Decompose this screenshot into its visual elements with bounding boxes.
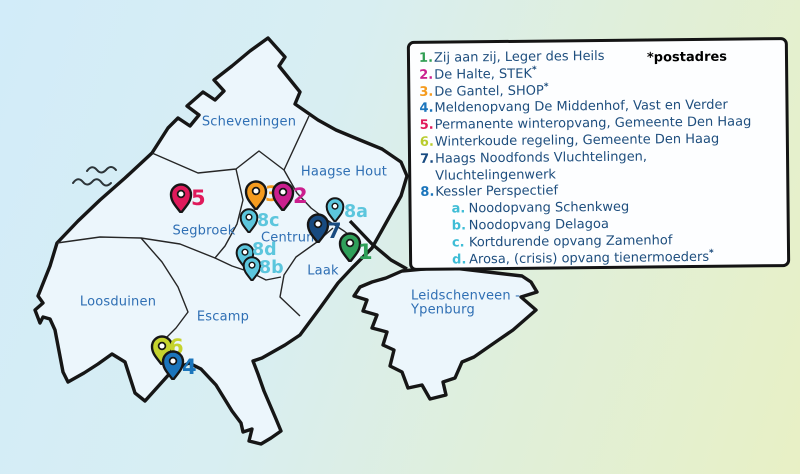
legend-item-number: 3. [419,84,434,101]
pin-label-4: 4 [182,355,197,379]
den-haag-opvang-infographic: ScheveningenHaagse HoutSegbroekCentrumLa… [0,0,800,474]
legend-subitem-label: Arosa, (crisis) opvang tienermoeders* [469,249,714,268]
district-label-ypenburg: Ypenburg [411,303,475,318]
legend-subitem-letter: a. [451,202,468,219]
district-label-laak: Laak [307,264,339,279]
postadres-note: *postadres [647,50,727,66]
pin-label-5: 5 [191,186,206,210]
legend-item-label: De Halte, STEK* [434,66,537,84]
legend-item-number: 1. [419,51,434,68]
legend-item-label: Zij aan zij, Leger des Heils [434,49,605,68]
legend-item-number: 4. [419,101,434,118]
sea-waves-icon [87,167,116,173]
district-label-leidschenveen: Leidschenveen - [411,289,520,304]
sea-waves-icon [73,179,111,185]
pin-label-2: 2 [293,184,308,208]
legend-subitem-letter: c. [452,235,469,252]
legend-subitem-label: Noodopvang Schenkweg [468,200,629,218]
map-pin-8c [239,208,259,237]
district-label-haagse-hout: Haagse Hout [301,165,387,180]
pin-label-8c: 8c [257,211,280,231]
ypenburg-outline [354,267,537,399]
legend-item-label: De Gantel, SHOP* [434,83,548,101]
legend-item-number: 6. [420,135,435,152]
pin-label-1: 1 [358,240,373,264]
legend-item-label: Winterkoude regeling, Gemeente Den Haag [435,132,719,152]
legend-item-number: 2. [419,68,434,85]
legend-item-label: Haags Noodfonds Vluchtelingen, [435,149,647,168]
legend-subitem-label: Noodopvang Delagoa [469,217,609,235]
district-label-escamp: Escamp [197,310,249,325]
legend-item-number: 7. [420,151,435,168]
map-pin-5 [169,183,193,217]
legend-subitem-letter: b. [452,218,469,235]
legend-subitem-label: Kortdurende opvang Zamenhof [469,233,673,252]
pin-label-8b: 8b [259,258,284,278]
legend-list: 1.Zij aan zij, Leger des Heils2.De Halte… [419,47,777,269]
legend-subitem-letter: d. [452,252,469,269]
district-label-scheveningen: Scheveningen [202,115,296,130]
legend-box: *postadres 1.Zij aan zij, Leger des Heil… [407,37,790,271]
district-label-loosduinen: Loosduinen [80,295,156,310]
pin-label-8a: 8a [344,202,368,222]
legend-item-number: 8. [420,185,435,202]
map-pin-2 [271,181,295,215]
legend-subitem-d: d.Arosa, (crisis) opvang tienermoeders* [452,249,777,269]
district-label-segbroek: Segbroek [173,224,236,239]
legend-item-label: Kessler Perspectief [435,184,558,202]
legend-item-label: Vluchtelingenwerk [435,167,556,185]
legend-item-number: 5. [420,118,435,135]
